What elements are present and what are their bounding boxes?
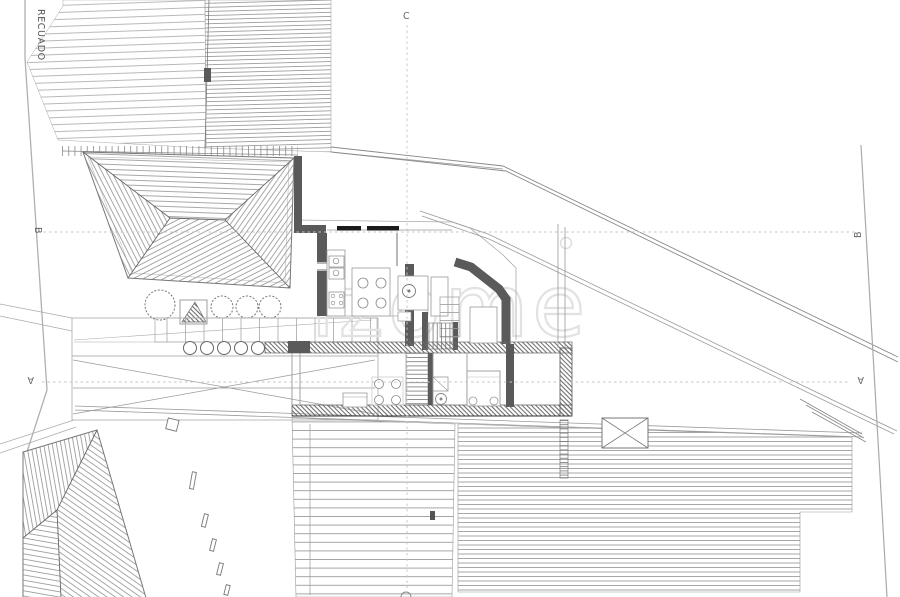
stool (358, 298, 368, 308)
lower-floor (292, 353, 500, 407)
section-marker-b-right: B (853, 231, 864, 238)
tree-icon (259, 296, 281, 318)
tree-icon (211, 296, 233, 318)
tree-icon (145, 290, 175, 320)
architectural-site-plan: RECUADO izome (0, 0, 900, 597)
cross-braced-structure (602, 418, 648, 448)
stairs-upper (427, 323, 453, 349)
shrub-row (184, 342, 265, 355)
steps-ladder (560, 420, 568, 478)
wall (506, 344, 514, 407)
stool (376, 298, 386, 308)
section-marker-a-left: A (27, 374, 34, 385)
wall-hatched-mid (265, 342, 572, 353)
wardrobe (470, 307, 497, 343)
right-boundary (861, 145, 887, 597)
terrace-left (292, 418, 455, 597)
section-marker-c-top: C (403, 11, 410, 22)
top-hatch-terrain (27, 0, 503, 169)
stairs-lower (406, 353, 428, 405)
wall (317, 233, 327, 316)
section-marker-a-right: A (857, 374, 864, 385)
garden-steps (166, 418, 230, 595)
window (337, 226, 361, 231)
section-marker-b-left: B (32, 227, 43, 234)
terrace-right (458, 424, 852, 592)
hatch-region-sparse (27, 0, 206, 148)
sofa (343, 393, 367, 407)
neighbor-roof (83, 152, 294, 288)
boundary-post (204, 68, 211, 82)
window (367, 226, 399, 231)
wall-hatched-bottom (292, 405, 572, 416)
wall (428, 353, 433, 405)
terraces (292, 418, 852, 597)
site-plan-drawing: RECUADO izome (0, 0, 900, 597)
watermark-registered-icon (561, 238, 572, 249)
stool (358, 278, 368, 288)
sink (329, 256, 344, 267)
hatch-region-dense (205, 0, 331, 152)
kitchen-island (352, 268, 390, 316)
pillow (490, 397, 498, 405)
pillow (469, 397, 477, 405)
chair (392, 396, 401, 405)
chair (375, 396, 384, 405)
stool (376, 278, 386, 288)
wall (294, 156, 302, 233)
sink (329, 268, 344, 279)
tree-icon (236, 296, 258, 318)
chair (392, 380, 401, 389)
chair (375, 380, 384, 389)
lower-roof (23, 430, 146, 597)
